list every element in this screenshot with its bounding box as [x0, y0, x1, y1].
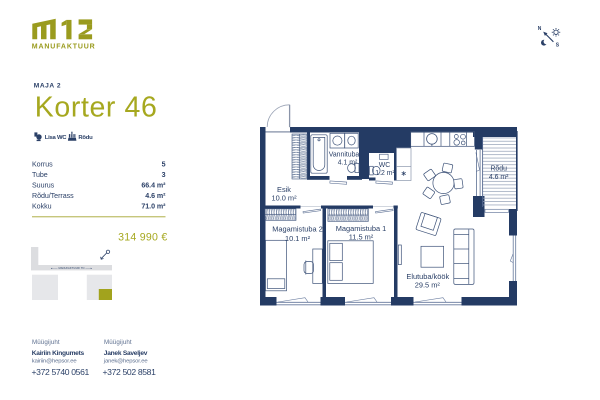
svg-text:kairiin@hepsor.ee: kairiin@hepsor.ee — [32, 358, 78, 364]
svg-text:Tube: Tube — [32, 171, 48, 179]
svg-text:4.6 m²: 4.6 m² — [145, 192, 166, 200]
svg-text:+372 502 8581: +372 502 8581 — [103, 367, 157, 377]
svg-text:WC: WC — [379, 162, 391, 169]
svg-text:3: 3 — [162, 171, 166, 179]
svg-text:66.4 m²: 66.4 m² — [141, 182, 166, 190]
svg-text:Rõdu: Rõdu — [78, 135, 93, 141]
svg-text:Müügijuht: Müügijuht — [32, 339, 60, 346]
svg-text:Rõdu: Rõdu — [490, 166, 507, 173]
svg-text:29.5 m²: 29.5 m² — [415, 281, 441, 290]
svg-text:1.2 m²: 1.2 m² — [375, 170, 395, 177]
svg-text:5: 5 — [162, 161, 166, 169]
svg-text:71.0 m²: 71.0 m² — [141, 203, 166, 211]
svg-text:Janek Saveljev: Janek Saveljev — [104, 350, 148, 357]
svg-text:4.6 m²: 4.6 m² — [489, 174, 509, 181]
svg-text:◂—— MANUFAKTUURI TN ——▸: ◂—— MANUFAKTUURI TN ——▸ — [51, 266, 93, 270]
svg-text:+372 5740 0561: +372 5740 0561 — [32, 367, 90, 377]
svg-text:MANUFAKTUUR: MANUFAKTUUR — [32, 43, 96, 50]
svg-text:Magamistuba 2: Magamistuba 2 — [272, 224, 323, 233]
svg-text:Kairiin Kingumets: Kairiin Kingumets — [32, 350, 85, 357]
svg-text:11.5 m²: 11.5 m² — [349, 233, 374, 242]
svg-text:Lisa WC: Lisa WC — [45, 135, 67, 141]
svg-text:10.0 m²: 10.0 m² — [271, 194, 297, 203]
svg-text:314 990 €: 314 990 € — [118, 231, 167, 243]
svg-text:4.1 m²: 4.1 m² — [338, 159, 358, 166]
svg-text:MAJA 2: MAJA 2 — [34, 82, 61, 89]
svg-text:janek@hepsor.ee: janek@hepsor.ee — [103, 358, 149, 364]
svg-text:Korter 46: Korter 46 — [35, 91, 158, 123]
svg-text:Korrus: Korrus — [32, 161, 53, 169]
svg-text:Vannituba: Vannituba — [329, 152, 360, 159]
svg-text:10.1 m²: 10.1 m² — [285, 234, 311, 243]
svg-text:Kokku: Kokku — [32, 203, 52, 211]
svg-text:Rõdu/Terrass: Rõdu/Terrass — [32, 192, 74, 200]
svg-text:Müügijuht: Müügijuht — [104, 339, 132, 346]
svg-text:N: N — [538, 26, 542, 32]
svg-text:S: S — [556, 43, 560, 49]
svg-text:Suurus: Suurus — [32, 182, 55, 190]
